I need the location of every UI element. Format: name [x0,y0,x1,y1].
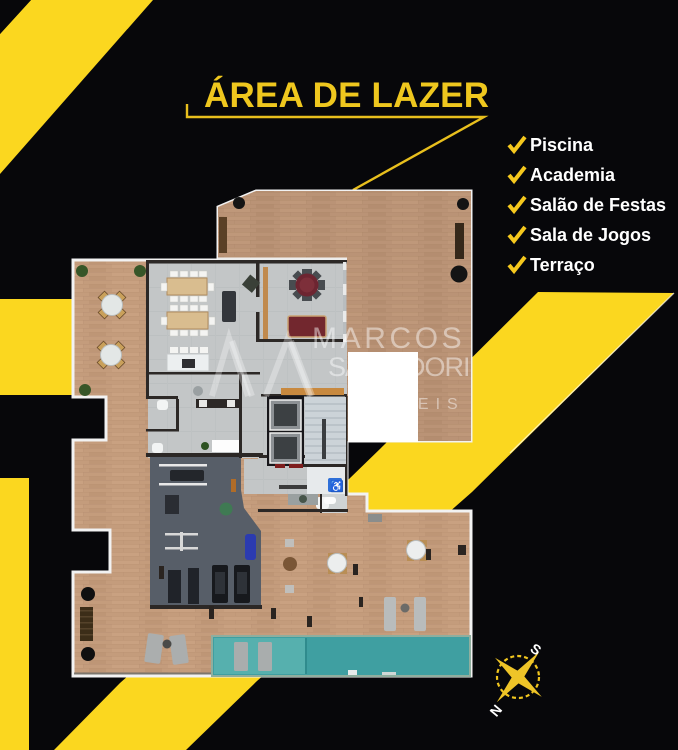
svg-text:MARCOS: MARCOS [312,322,465,355]
svg-text:Sala de Jogos: Sala de Jogos [530,225,651,245]
svg-text:♿: ♿ [330,480,344,493]
svg-text:Academia: Academia [530,165,616,185]
svg-text:Terraço: Terraço [530,255,595,275]
svg-text:Salão de Festas: Salão de Festas [530,195,666,215]
svg-text:SALVADORI: SALVADORI [328,352,470,382]
svg-text:ÁREA DE LAZER: ÁREA DE LAZER [204,75,489,115]
svg-text:Piscina: Piscina [530,135,594,155]
svg-text:IMÓVEIS: IMÓVEIS [349,394,465,413]
